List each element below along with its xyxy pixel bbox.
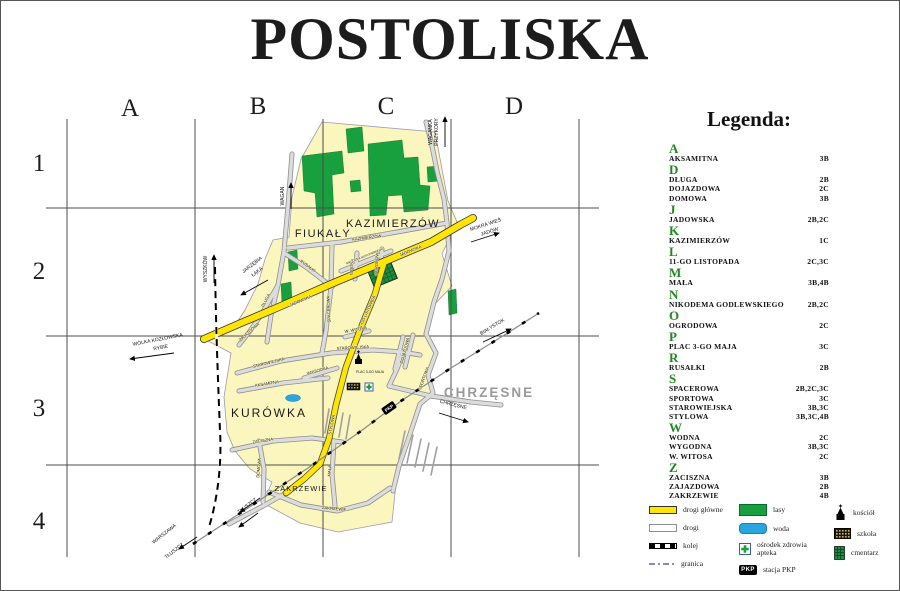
legend-letter-O: O <box>669 309 829 321</box>
street-grid-ref: 2B <box>820 482 829 491</box>
street-grid-ref: 3C <box>819 342 829 351</box>
grid-row-2: 2 <box>33 258 46 285</box>
street-label-mala: MAŁA <box>327 465 333 477</box>
symbol-label: lasy <box>773 506 785 514</box>
symbol-label: granica <box>681 560 703 568</box>
street-entry: WODNA2C <box>669 433 829 442</box>
school-legend-icon <box>834 528 851 539</box>
symbol-water: woda <box>739 523 834 534</box>
street-entry: DOMOWA3B <box>669 194 829 203</box>
legend-letter-P: P <box>669 330 829 342</box>
legend-letter-S: S <box>669 372 829 384</box>
street-grid-ref: 3B <box>820 473 829 482</box>
symbol-pkp-station: PKP stacja PKP <box>739 564 834 575</box>
exit-label-wagan: WAGAN <box>280 186 286 205</box>
map-sheet: POSTOLISKA <box>0 0 900 591</box>
legend-letter-R: R <box>669 351 829 363</box>
legend-letter-L: L <box>669 245 829 257</box>
street-grid-ref: 3B,3C,4B <box>796 412 829 421</box>
grid-row-1: 1 <box>33 150 46 177</box>
border-swatch <box>649 563 675 565</box>
street-name: ZAKRZEWIE <box>669 491 719 500</box>
symbol-label: kolej <box>683 542 698 550</box>
legend-letter-A: A <box>669 142 829 154</box>
street-grid-ref: 2C <box>819 184 829 193</box>
street-grid-ref: 2C <box>819 452 829 461</box>
street-grid-ref: 2B,2C <box>808 215 829 224</box>
street-grid-ref: 1C <box>819 236 829 245</box>
street-name: DŁUGA <box>669 175 698 184</box>
street-index: AAKSAMITNA3BDDŁUGA2BDOJAZDOWA2CDOMOWA3BJ… <box>669 142 829 500</box>
street-grid-ref: 3B <box>820 154 829 163</box>
street-grid-ref: 2B,2C,3C <box>796 384 829 393</box>
symbols-column-areas: lasy woda ośrodek zdrowia apteka PKP sta… <box>739 504 834 575</box>
street-label-plac: PLAC 3-GO MAJA <box>356 370 385 374</box>
symbol-border: granica <box>649 558 739 569</box>
street-entry: ZACISZNA3B <box>669 473 829 482</box>
water-swatch <box>739 523 767 534</box>
street-entry: W. WITOSA2C <box>669 452 829 461</box>
street-entry: AKSAMITNA3B <box>669 154 829 163</box>
legend-panel: Legenda: AAKSAMITNA3BDDŁUGA2BDOJAZDOWA2C… <box>669 107 829 500</box>
street-entry: DŁUGA2B <box>669 175 829 184</box>
symbols-column-lines: drogi główne drogi kolej granica <box>649 504 739 575</box>
health-center-legend-icon <box>739 543 751 555</box>
street-name: STAROWIEJSKA <box>669 403 732 412</box>
grid-col-b: B <box>250 93 267 120</box>
exit-label-tluszcz-2: TŁUSZCZ <box>164 542 185 561</box>
street-grid-ref: 3B <box>820 194 829 203</box>
legend-title: Legenda: <box>669 107 829 132</box>
exit-label-waganka-2: PRZYKORY <box>434 118 440 146</box>
street-entry: 11-GO LISTOPADA2C,3C <box>669 257 829 266</box>
symbol-label: cmentarz <box>851 549 878 557</box>
street-grid-ref: 3B,3C <box>808 403 829 412</box>
street-entry: WYGODNA3B,3C <box>669 442 829 451</box>
symbol-school: szkoła <box>834 528 897 539</box>
street-entry: ZAJAZDOWA2B <box>669 482 829 491</box>
street-grid-ref: 2B <box>820 363 829 372</box>
exit-label-wolka-2: RYBIE <box>153 344 169 353</box>
symbol-label: drogi główne <box>683 506 723 514</box>
exit-label-warszawa: WARSZAWA <box>151 523 178 546</box>
area-label-fiukaly: FIUKAŁY <box>295 228 351 240</box>
railway-swatch <box>649 543 677 549</box>
pkp-legend-icon: PKP <box>739 565 757 575</box>
street-grid-ref: 3B,4B <box>808 278 829 287</box>
street-grid-ref: 2C <box>819 321 829 330</box>
street-entry: STAROWIEJSKA3B,3C <box>669 403 829 412</box>
street-name: KAZIMIERZÓW <box>669 236 730 245</box>
symbol-label: stacja PKP <box>763 566 796 574</box>
water-pond <box>286 395 301 402</box>
street-entry: OGRODOWA2C <box>669 321 829 330</box>
street-grid-ref: 3C <box>819 394 829 403</box>
symbol-forest: lasy <box>739 504 834 516</box>
symbol-label-line2: apteka <box>757 548 777 557</box>
street-name: PLAC 3-GO MAJA <box>669 342 737 351</box>
health-center-icon <box>365 383 373 391</box>
legend-letter-K: K <box>669 224 829 236</box>
grid-col-d: D <box>505 93 523 120</box>
grid-row-4: 4 <box>33 508 46 535</box>
symbol-railway: kolej <box>649 540 739 551</box>
road-swatch <box>649 524 677 532</box>
street-name: DOJAZDOWA <box>669 184 720 193</box>
street-grid-ref: 4B <box>820 491 829 500</box>
grid-col-a: A <box>121 95 139 122</box>
street-label-spacerowa: SPACEROWA <box>326 295 332 322</box>
legend-letter-M: M <box>669 266 829 278</box>
symbol-label: kościół <box>853 509 875 517</box>
street-grid-ref: 2B <box>820 175 829 184</box>
symbols-legend: drogi główne drogi kolej granica lasy <box>649 504 897 575</box>
grid-col-c: C <box>378 93 395 120</box>
school-icon <box>347 383 360 390</box>
legend-letter-J: J <box>669 203 829 215</box>
street-name: WYGODNA <box>669 442 712 451</box>
exit-label-wyszkow: WYSZKÓW <box>202 256 209 283</box>
street-grid-ref: 2C <box>819 433 829 442</box>
street-name: WODNA <box>669 433 700 442</box>
area-label-zakrzewie: ZAKRZEWIE <box>275 484 328 493</box>
street-entry: ZAKRZEWIE4B <box>669 491 829 500</box>
street-entry: MAŁA3B,4B <box>669 278 829 287</box>
forest-swatch <box>739 504 767 516</box>
symbol-label: woda <box>773 525 789 533</box>
street-name: ZAJAZDOWA <box>669 482 720 491</box>
main-road-swatch <box>649 506 677 514</box>
street-grid-ref: 2C,3C <box>807 257 829 266</box>
area-label-kurowka: KURÓWKA <box>231 405 307 420</box>
exit-label-bialystok: BIAŁYSTOK <box>479 317 506 337</box>
street-entry: JADOWSKA2B,2C <box>669 215 829 224</box>
legend-letter-D: D <box>669 163 829 175</box>
street-grid-ref: 2B,2C <box>808 300 829 309</box>
legend-letter-N: N <box>669 288 829 300</box>
street-entry: SPACEROWA2B,2C,3C <box>669 384 829 393</box>
street-name: SPACEROWA <box>669 384 719 393</box>
symbol-roads: drogi <box>649 522 739 533</box>
street-name: ZACISZNA <box>669 473 710 482</box>
symbol-main-roads: drogi główne <box>649 504 739 515</box>
street-entry: RUSAŁKI2B <box>669 363 829 372</box>
symbol-label: ośrodek zdrowia apteka <box>757 541 807 557</box>
street-entry: KAZIMIERZÓW1C <box>669 236 829 245</box>
legend-letter-Z: Z <box>669 461 829 473</box>
church-legend-icon <box>834 504 847 521</box>
street-entry: STYLOWA3B,3C,4B <box>669 412 829 421</box>
street-grid-ref: 3B,3C <box>808 442 829 451</box>
symbol-label: drogi <box>683 524 699 532</box>
area-label-chrzesne: CHRZĘSNE <box>444 385 534 400</box>
street-name: NIKODEMA GODLEWSKIEGO <box>669 300 784 309</box>
street-name: SPORTOWA <box>669 394 714 403</box>
legend-letter-W: W <box>669 421 829 433</box>
cemetery-legend-icon <box>834 546 845 560</box>
symbols-column-points: kościół szkoła <box>834 504 897 575</box>
symbol-cemetery: cmentarz <box>834 546 897 560</box>
area-label-kazimierzow: KAZIMIERZÓW <box>346 217 440 230</box>
street-entry: PLAC 3-GO MAJA3C <box>669 342 829 351</box>
symbol-health-center: ośrodek zdrowia apteka <box>739 541 834 557</box>
grid-row-3: 3 <box>33 395 46 422</box>
street-entry: SPORTOWA3C <box>669 394 829 403</box>
street-entry: DOJAZDOWA2C <box>669 184 829 193</box>
symbol-label: szkoła <box>857 530 876 538</box>
railway-wyszkow-branch <box>209 267 220 527</box>
symbol-church: kościół <box>834 504 897 521</box>
street-entry: NIKODEMA GODLEWSKIEGO2B,2C <box>669 300 829 309</box>
